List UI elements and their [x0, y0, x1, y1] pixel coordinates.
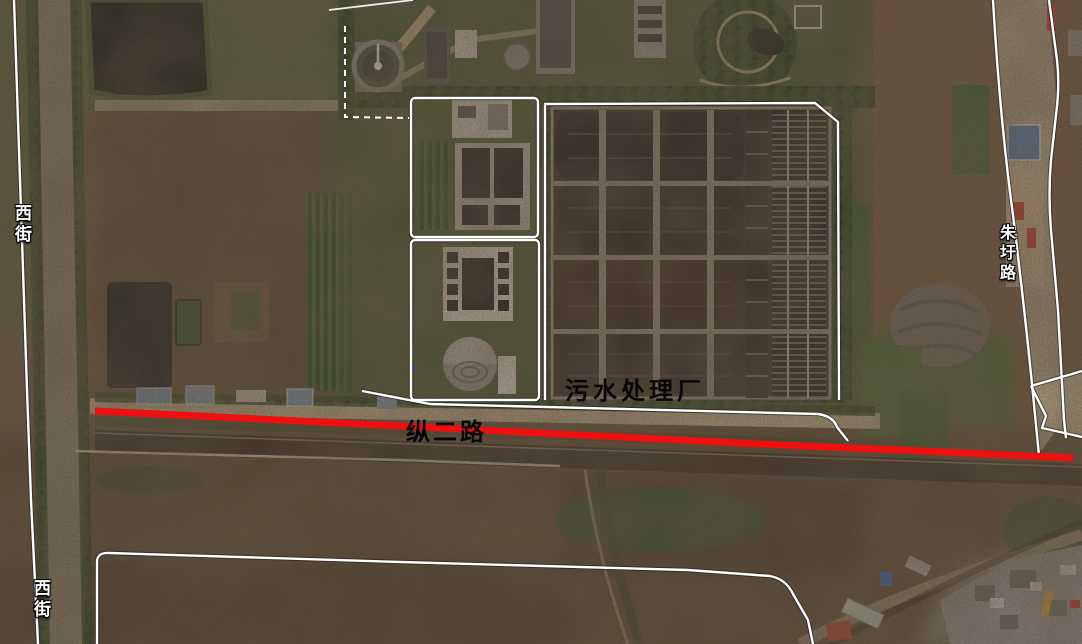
satellite-map-canvas[interactable]: 西街 西街 朱圩路 污水处理厂 纵二路 — [0, 0, 1082, 644]
satellite-imagery-layer — [0, 0, 1082, 644]
